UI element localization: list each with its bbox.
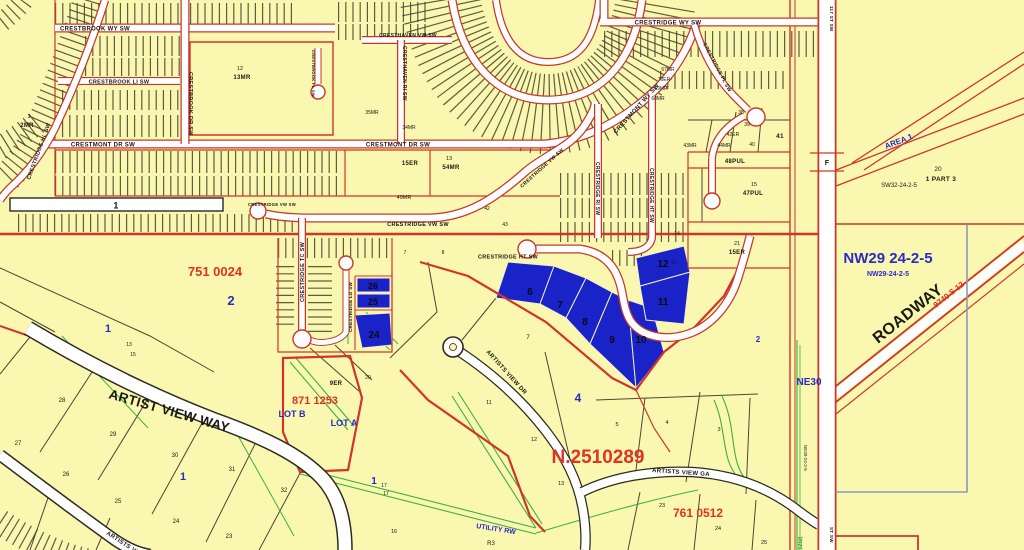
section-nw29-large: NW29 24-2-5 bbox=[843, 250, 932, 267]
lot-13b: 13 bbox=[558, 481, 564, 487]
lot-41: 41 bbox=[776, 133, 784, 140]
reserve-9er: 9ER bbox=[330, 381, 343, 387]
reserve-15er-right: 15ER bbox=[729, 250, 746, 256]
street-label-crestridge-vw-sw-bulb: CRESTRIDGE VW SW bbox=[248, 202, 296, 207]
reserve-44mr: 44MR bbox=[717, 143, 731, 149]
plan-871-1253: 871 1253 bbox=[292, 395, 338, 407]
lot-8a: 8 bbox=[442, 250, 445, 256]
lot-15a: 15 bbox=[130, 352, 136, 358]
lot-28: 28 bbox=[59, 398, 66, 404]
street-label-crestridge-ld-sw: CRESTRIDGE LD SW bbox=[348, 281, 353, 332]
road-f-label: F bbox=[825, 160, 830, 167]
lot-5: 5 bbox=[615, 422, 618, 428]
reserve-15er-left: 15ER bbox=[402, 161, 419, 167]
highlight-label-26: 26 bbox=[368, 281, 378, 291]
street-label-crestbrook-li-sw: CRESTBROOK LI SW bbox=[89, 80, 150, 86]
reserve-strip-label: 1 bbox=[113, 201, 118, 211]
lot-43: 43 bbox=[502, 222, 508, 228]
lot-25: 25 bbox=[115, 499, 122, 505]
street-label-crestbrook-pl-sw: CRESTBROOK PL SW bbox=[311, 50, 316, 97]
reserve-34mr: 34MR bbox=[402, 125, 416, 131]
lot-23b: 23 bbox=[659, 503, 665, 509]
highlight-label-6: 6 bbox=[527, 287, 533, 298]
block-4: 4 bbox=[575, 391, 582, 405]
lot-27: 27 bbox=[15, 441, 22, 447]
reserve-15er-right-num: 21 bbox=[734, 241, 740, 247]
zone-r3: R3 bbox=[487, 541, 495, 547]
street-label-crestridge-vw-sw-main: CRESTRIDGE VW SW bbox=[387, 222, 449, 228]
lot-32: 32 bbox=[281, 488, 288, 494]
lot-17b: 17 bbox=[383, 491, 389, 497]
reserve-13mr: 13MR bbox=[233, 75, 251, 81]
lot-21: 21 bbox=[671, 260, 677, 266]
section-ne30-vertical: NE30-24-2-5 bbox=[803, 445, 808, 471]
lot-7a: 7 bbox=[404, 250, 407, 256]
reserve-49mr: 49MR bbox=[397, 195, 412, 201]
lot-24: 24 bbox=[173, 519, 180, 525]
reserve-47pul-num: 15 bbox=[751, 182, 757, 188]
lot-4: 4 bbox=[665, 420, 668, 426]
street-label-crestmont-dr-sw-left: CRESTMONT DR SW bbox=[71, 143, 135, 149]
reserve-13: 13 bbox=[446, 156, 452, 162]
reserve-48pul: 48PUL bbox=[725, 159, 745, 165]
reserve-47pul: 47PUL bbox=[743, 191, 763, 197]
bulb-island bbox=[450, 344, 457, 351]
street-label-crestridge-ht-sw-bulb: CRESTRIDGE HT SW bbox=[478, 255, 539, 261]
lot-12a: 12 bbox=[531, 437, 537, 443]
reserve-68mr: 68MR bbox=[651, 96, 665, 102]
highlight-label-12: 12 bbox=[657, 259, 669, 270]
highlight-label-11: 11 bbox=[658, 297, 669, 308]
reserve-70er: 70ER bbox=[658, 77, 671, 83]
lot-13a: 13 bbox=[126, 342, 132, 348]
road-reserve-strip: 1 bbox=[10, 198, 223, 211]
street-label-crestridge-wy-sw: CRESTRIDGE WY SW bbox=[635, 21, 702, 27]
section-ne30: NE30 bbox=[796, 377, 821, 388]
street-label-st-sw-bottom: ST SW bbox=[829, 527, 834, 543]
reserve-42er: 42ER bbox=[727, 132, 740, 138]
lot-23: 23 bbox=[226, 534, 233, 540]
reserve-67mr: 67MR bbox=[661, 67, 675, 73]
street-label-crestridge-ht-sw-vert: CRESTRIDGE HT SW bbox=[648, 168, 654, 223]
section-sw32: SW32-24-2-5 bbox=[881, 183, 917, 189]
lot-11: 11 bbox=[486, 400, 492, 406]
reserve-3: 3 bbox=[28, 114, 31, 120]
reserve-2mr: 2MR bbox=[20, 123, 34, 129]
block-2-small: 2 bbox=[756, 335, 761, 344]
lot-14: 14 bbox=[674, 231, 680, 237]
lot-3: 3 bbox=[717, 427, 720, 433]
section-green-1212: (1212) bbox=[798, 536, 804, 550]
block-1-mid: 1 bbox=[371, 476, 377, 487]
highlight-label-7: 7 bbox=[557, 300, 563, 311]
block-1-bottom: 1 bbox=[180, 471, 186, 483]
lot-42: 42 bbox=[484, 206, 490, 212]
lot-29: 29 bbox=[110, 432, 117, 438]
lot-31: 31 bbox=[229, 467, 236, 473]
reserve-54mr: 54MR bbox=[442, 165, 460, 171]
block-1-left: 1 bbox=[105, 323, 111, 335]
section-nw29-small: NW29-24-2-5 bbox=[867, 271, 909, 278]
reserve-12: 12 bbox=[237, 66, 243, 72]
street-label-crestbrook-wy-sw: CRESTBROOK WY SW bbox=[60, 27, 130, 33]
highlight-label-24: 24 bbox=[368, 330, 380, 341]
section-part-20: 20 bbox=[934, 166, 942, 173]
reserve-43mr: 43MR bbox=[683, 143, 697, 149]
street-label-crestridge-tc-sw: CRESTRIDGE TC SW bbox=[300, 241, 306, 302]
lot-16: 16 bbox=[391, 529, 397, 535]
street-label-crestridge-ri-sw: CRESTRIDGE RI SW bbox=[594, 162, 600, 215]
plan-751-0024: 751 0024 bbox=[188, 264, 243, 279]
lot-38: 38 bbox=[738, 110, 744, 116]
reserve-9er-num: 20 bbox=[365, 375, 371, 381]
highlight-label-9: 9 bbox=[609, 335, 615, 346]
street-label-crestbrook-dr-sw: CRESTBROOK DR SW bbox=[187, 72, 193, 136]
street-label-cresthaven-ri-sw: CRESTHAVEN RI SW bbox=[401, 46, 407, 101]
lot-39: 39 bbox=[744, 122, 750, 128]
lot-26: 26 bbox=[63, 472, 70, 478]
street-label-cresthaven-vw-sw: CRESTHAVEN VW SW bbox=[379, 33, 437, 39]
lot-17a: 17 bbox=[381, 483, 387, 489]
plan-n-2510289: N.2510289 bbox=[552, 447, 645, 468]
street-label-117-st-sw: 117 ST SW bbox=[829, 6, 834, 32]
highlight-label-25: 25 bbox=[368, 297, 378, 307]
lot-a-label: LOT A bbox=[331, 418, 358, 428]
lot-40: 40 bbox=[749, 142, 755, 148]
reserve-69mr: 69MR bbox=[654, 86, 668, 92]
highlight-label-8: 8 bbox=[582, 317, 588, 328]
block-2-left: 2 bbox=[227, 293, 234, 308]
map-canvas[interactable]: 1 CRESTBROOK WY SW CRESTBROOK LI SW CRES… bbox=[0, 0, 1024, 550]
lot-24b: 24 bbox=[715, 526, 721, 532]
street-label-crestmont-dr-sw-mid: CRESTMONT DR SW bbox=[366, 143, 430, 149]
lot-b-label: LOT B bbox=[279, 409, 306, 419]
lot-30: 30 bbox=[172, 453, 179, 459]
plan-761-0512: 761 0512 bbox=[673, 506, 723, 520]
highlight-label-10: 10 bbox=[635, 335, 647, 346]
section-1-part-3: 1 PART 3 bbox=[926, 176, 957, 183]
reserve-35mr: 35MR bbox=[365, 110, 379, 116]
lot-25b: 25 bbox=[761, 540, 767, 546]
